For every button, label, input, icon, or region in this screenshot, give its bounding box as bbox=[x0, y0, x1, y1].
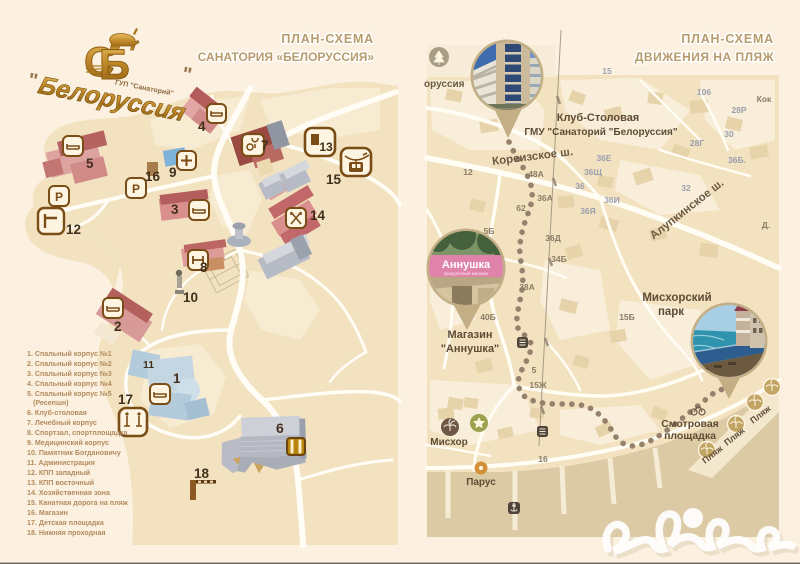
svg-text:ПЛАН-СХЕМА: ПЛАН-СХЕМА bbox=[281, 32, 374, 46]
svg-text:16: 16 bbox=[538, 454, 548, 464]
svg-text:30: 30 bbox=[724, 129, 734, 139]
svg-text:5. Спальный корпус №5: 5. Спальный корпус №5 bbox=[27, 390, 112, 398]
svg-text:48А: 48А bbox=[528, 169, 544, 179]
svg-text:15. Канатная дорога на пляж: 15. Канатная дорога на пляж bbox=[27, 499, 129, 507]
svg-text:8: 8 bbox=[200, 260, 208, 275]
svg-text:7: 7 bbox=[261, 138, 269, 153]
svg-text:15Ж: 15Ж bbox=[529, 380, 546, 390]
svg-text:1: 1 bbox=[173, 371, 181, 386]
svg-text:6: 6 bbox=[276, 420, 284, 436]
svg-text:36: 36 bbox=[575, 181, 585, 191]
svg-text:Смотровая: Смотровая bbox=[661, 418, 719, 430]
svg-text:40Б: 40Б bbox=[480, 312, 496, 322]
svg-text:парк: парк bbox=[658, 306, 684, 318]
svg-text:12. КПП западный: 12. КПП западный bbox=[27, 469, 90, 477]
svg-text:36И: 36И bbox=[604, 195, 620, 205]
svg-text:Парус: Парус bbox=[466, 477, 496, 488]
svg-text:18: 18 bbox=[194, 466, 210, 481]
svg-text:2. Спальный корпус №2: 2. Спальный корпус №2 bbox=[27, 360, 112, 368]
svg-text:15: 15 bbox=[326, 172, 342, 187]
svg-text:62: 62 bbox=[516, 203, 526, 213]
svg-text:4: 4 bbox=[198, 119, 206, 134]
svg-text:P: P bbox=[132, 182, 140, 196]
svg-text:11. Администрация: 11. Администрация bbox=[27, 459, 95, 467]
svg-text:оруссия: оруссия bbox=[424, 79, 465, 90]
svg-text:Магазин: Магазин bbox=[447, 329, 492, 341]
svg-text:34Б: 34Б bbox=[551, 254, 567, 264]
svg-text:36Б.: 36Б. bbox=[728, 155, 746, 165]
svg-text:16: 16 bbox=[145, 169, 161, 184]
svg-text:36Е: 36Е bbox=[596, 153, 611, 163]
svg-text:4. Спальный корпус №4: 4. Спальный корпус №4 bbox=[27, 380, 112, 388]
svg-text:5: 5 bbox=[532, 365, 537, 375]
svg-text:12: 12 bbox=[463, 167, 473, 177]
svg-text:Д.: Д. bbox=[762, 220, 770, 230]
svg-text:5: 5 bbox=[86, 156, 94, 171]
svg-text:15: 15 bbox=[602, 66, 612, 76]
svg-text:15Б: 15Б bbox=[619, 312, 635, 322]
svg-text:7. Лечебный корпус: 7. Лечебный корпус bbox=[27, 419, 97, 427]
svg-text:10. Памятник Богдановичу: 10. Памятник Богдановичу bbox=[27, 449, 121, 457]
svg-text:1. Спальный корпус №1: 1. Спальный корпус №1 bbox=[27, 350, 112, 358]
svg-text:12: 12 bbox=[66, 222, 81, 237]
svg-text:36А: 36А bbox=[537, 193, 553, 203]
svg-text:ГМУ "Санаторий "Белоруссия": ГМУ "Санаторий "Белоруссия" bbox=[524, 127, 678, 138]
svg-text:ДВИЖЕНИЯ НА ПЛЯЖ: ДВИЖЕНИЯ НА ПЛЯЖ bbox=[635, 50, 774, 64]
svg-text:14. Хозяйственная зона: 14. Хозяйственная зона bbox=[27, 489, 110, 497]
svg-text:продуктовый магазин: продуктовый магазин bbox=[444, 270, 489, 276]
svg-text:17. Детская площадка: 17. Детская площадка bbox=[27, 519, 104, 527]
svg-text:8. Спортзал, спортплощадка: 8. Спортзал, спортплощадка bbox=[27, 429, 128, 437]
svg-text:13. КПП восточный: 13. КПП восточный bbox=[27, 479, 94, 487]
svg-text:6. Клуб-столовая: 6. Клуб-столовая bbox=[27, 409, 87, 417]
svg-text:13: 13 bbox=[319, 140, 333, 154]
svg-text:Аннушка: Аннушка bbox=[442, 259, 491, 271]
svg-text:"Аннушка": "Аннушка" bbox=[441, 343, 500, 355]
svg-text:18. Нижняя проходная: 18. Нижняя проходная bbox=[27, 529, 106, 537]
svg-text:14: 14 bbox=[310, 208, 326, 223]
svg-text:САНАТОРИЯ «БЕЛОРУССИЯ»: САНАТОРИЯ «БЕЛОРУССИЯ» bbox=[198, 50, 375, 64]
svg-text:9. Медицинский корпус: 9. Медицинский корпус bbox=[27, 439, 109, 447]
svg-text:38А: 38А bbox=[519, 282, 535, 292]
svg-text:Мисхор: Мисхор bbox=[430, 437, 467, 448]
svg-text:Клуб-Столовая: Клуб-Столовая bbox=[557, 112, 639, 124]
svg-text:17: 17 bbox=[118, 392, 133, 407]
svg-text:(Ресепшн): (Ресепшн) bbox=[33, 399, 69, 407]
svg-text:P: P bbox=[55, 190, 63, 204]
svg-text:32: 32 bbox=[681, 183, 691, 193]
svg-text:площадка: площадка bbox=[664, 430, 716, 442]
svg-text:ПЛАН-СХЕМА: ПЛАН-СХЕМА bbox=[681, 32, 774, 46]
svg-text:36Д: 36Д bbox=[545, 233, 561, 243]
svg-text:Кок: Кок bbox=[757, 94, 772, 104]
svg-text:106: 106 bbox=[697, 87, 711, 97]
svg-text:9: 9 bbox=[169, 165, 177, 180]
svg-text:28Р: 28Р bbox=[731, 105, 746, 115]
svg-text:36Я: 36Я bbox=[580, 206, 596, 216]
svg-text:Мисхорский: Мисхорский bbox=[642, 292, 711, 304]
svg-text:36Щ: 36Щ bbox=[584, 167, 602, 177]
svg-text:2: 2 bbox=[114, 319, 122, 334]
svg-text:16. Магазин: 16. Магазин bbox=[27, 509, 68, 517]
svg-text:3: 3 bbox=[171, 202, 179, 217]
svg-text:10: 10 bbox=[183, 290, 198, 305]
svg-text:11: 11 bbox=[143, 359, 154, 371]
svg-text:28Г: 28Г bbox=[690, 138, 704, 148]
svg-text:3. Спальный корпус №3: 3. Спальный корпус №3 bbox=[27, 370, 112, 378]
